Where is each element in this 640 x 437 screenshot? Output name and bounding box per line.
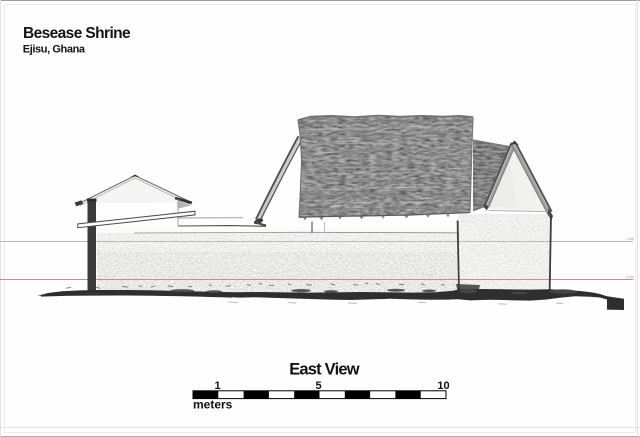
- svg-text:0.0m: 0.0m: [626, 275, 634, 279]
- svg-text:1.5m: 1.5m: [626, 237, 634, 241]
- svg-text:Ejisu, Ghana: Ejisu, Ghana: [23, 43, 86, 55]
- svg-text:1: 1: [214, 380, 220, 392]
- svg-text:Besease Shrine: Besease Shrine: [23, 25, 131, 42]
- svg-text:5: 5: [316, 380, 322, 392]
- svg-text:10: 10: [437, 380, 449, 392]
- svg-text:meters: meters: [193, 398, 233, 412]
- svg-text:East View: East View: [289, 361, 360, 379]
